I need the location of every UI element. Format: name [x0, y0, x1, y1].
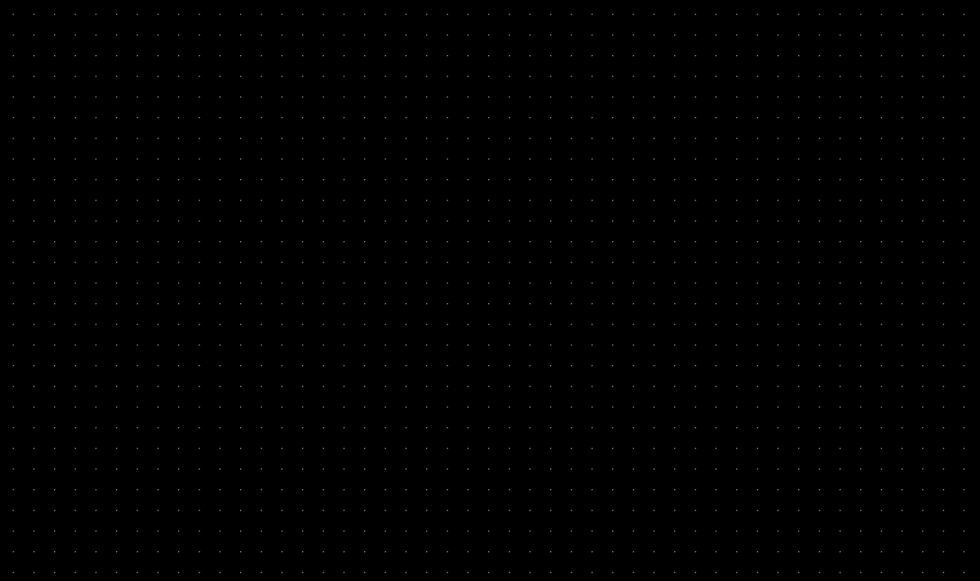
canvas-background	[0, 0, 980, 581]
pcb-editor-canvas[interactable]	[0, 0, 980, 581]
